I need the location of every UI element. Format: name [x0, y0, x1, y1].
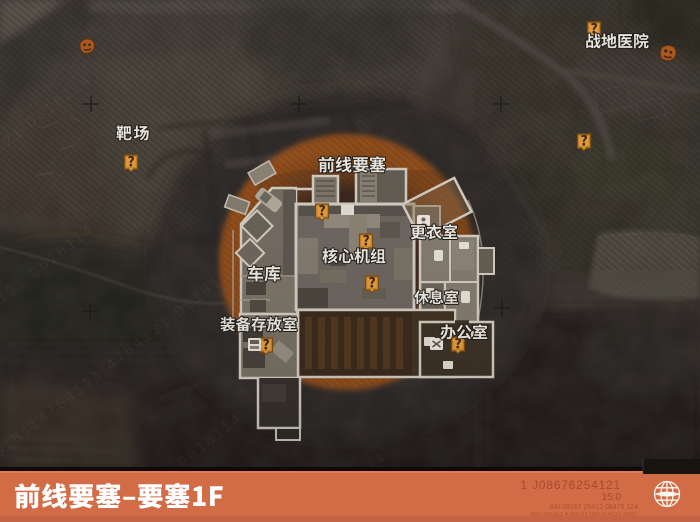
svg-text:1 J08676254121: 1 J08676254121: [520, 478, 621, 492]
svg-text:15:0: 15:0: [602, 492, 622, 503]
svg-text:4M1 081611 4764121 08475 4121: 4M1 081611 4764121 08475 4121 4M87: [530, 512, 639, 518]
svg-text:AM 08167 25412 08475 124: AM 08167 25412 08475 124: [550, 504, 638, 511]
